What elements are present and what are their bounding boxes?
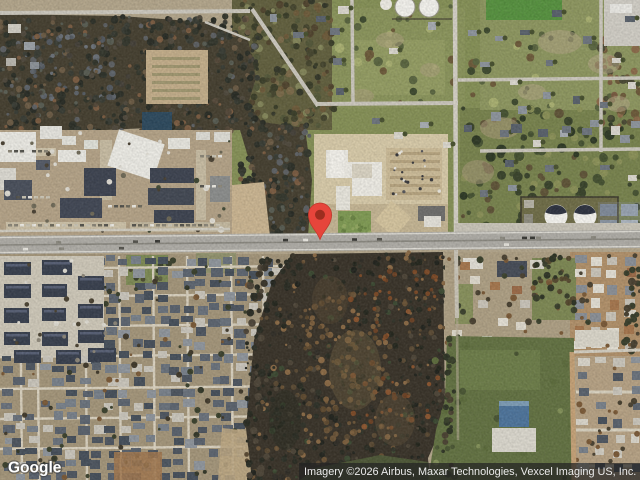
- svg-text:Imagery ©2026 Airbus, Maxar Te: Imagery ©2026 Airbus, Maxar Technologies…: [304, 466, 636, 478]
- svg-text:Google: Google: [8, 460, 62, 477]
